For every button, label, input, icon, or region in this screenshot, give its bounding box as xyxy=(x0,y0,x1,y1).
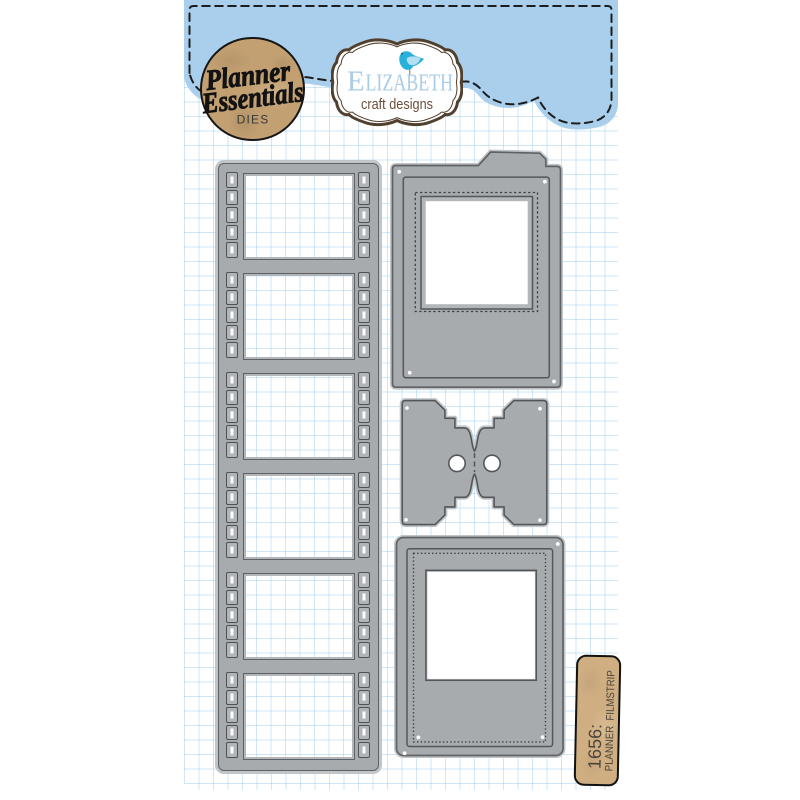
svg-text:DIES: DIES xyxy=(236,113,269,127)
svg-text:LIZABETH: LIZABETH xyxy=(366,69,454,96)
svg-text:craft designs: craft designs xyxy=(361,97,433,113)
svg-text:PLANNER FILMSTRIP: PLANNER FILMSTRIP xyxy=(603,670,617,771)
svg-text:1656:: 1656: xyxy=(584,724,605,769)
svg-text:E: E xyxy=(347,65,365,97)
